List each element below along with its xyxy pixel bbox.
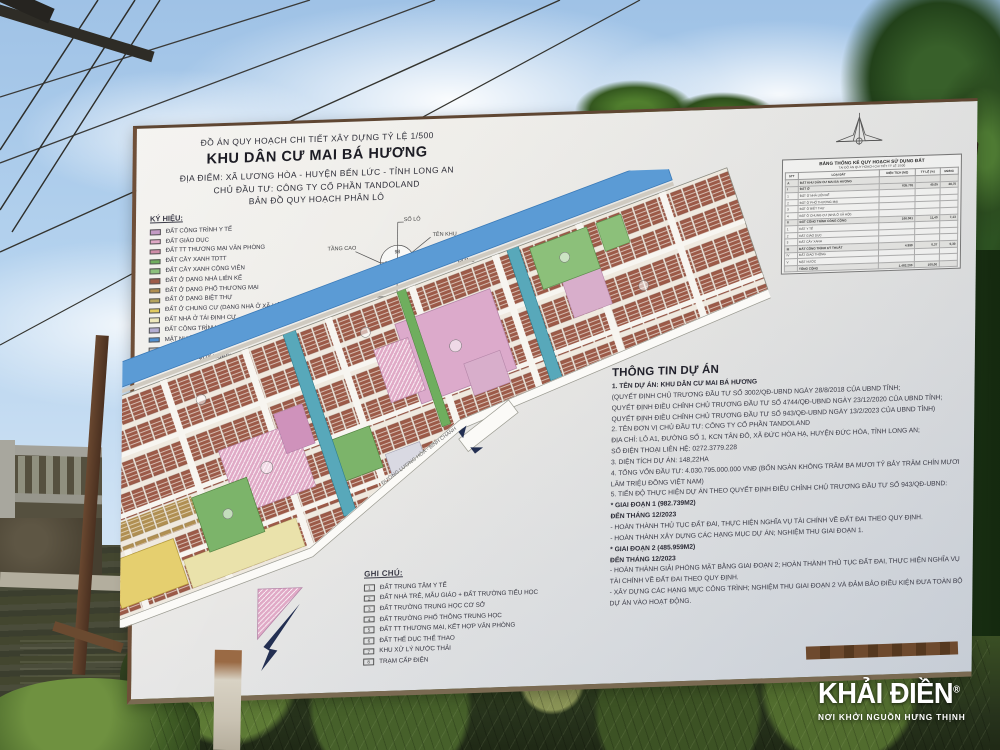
note-number: 7 <box>363 648 374 655</box>
railing-baluster <box>32 456 39 496</box>
note-number: 8 <box>363 658 374 665</box>
watermark-brand: KHẢI ĐIỀN® <box>818 680 960 709</box>
registered-mark: ® <box>953 684 959 695</box>
note-label: ĐẤT THỂ DỤC THỂ THAO <box>379 634 455 644</box>
map-corner-arrow <box>239 584 340 687</box>
photo-of-planning-billboard: ĐỒ ÁN QUY HOẠCH CHI TIẾT XÂY DỰNG TỶ LỆ … <box>0 0 1000 750</box>
stats-cell-stt <box>784 265 797 272</box>
billboard-post <box>213 650 242 750</box>
note-number: 4 <box>364 616 375 623</box>
project-info-block: THÔNG TIN DỰ ÁN 1. TÊN DỰ ÁN: KHU DÂN CƯ… <box>609 355 967 610</box>
land-use-stats-table: BẢNG THỐNG KÊ QUY HOẠCH SỬ DỤNG ĐẤT TẠI … <box>781 154 962 275</box>
stats-cell-name: TỔNG CỘNG <box>797 263 878 272</box>
note-items: 1ĐẤT TRUNG TÂM Y TẾ2ĐẤT NHÀ TRẺ, MẪU GIÁ… <box>363 574 614 667</box>
note-number: 3 <box>364 605 375 612</box>
note-label: ĐẤT TRUNG TÂM Y TẾ <box>380 582 447 591</box>
north-star-symbol <box>824 110 894 156</box>
stats-cell-area: 1.482.200 <box>878 261 914 269</box>
note-label: KHU XỬ LÝ NƯỚC THẢI <box>379 645 451 654</box>
note-label: TRẠM CẤP ĐIỆN <box>379 656 428 665</box>
railing-baluster <box>74 456 81 496</box>
planning-billboard: ĐỒ ÁN QUY HOẠCH CHI TIẾT XÂY DỰNG TỶ LỆ … <box>127 98 978 705</box>
railing-baluster <box>46 456 53 496</box>
watermark-tagline: NƠI KHỞI NGUỒN HƯNG THỊNH <box>818 712 969 722</box>
note-number: 1 <box>364 584 375 591</box>
railing-baluster <box>18 456 25 496</box>
stats-cell-norm <box>939 260 957 267</box>
stats-cell-pct: 100,00 <box>914 261 939 268</box>
project-info-lines: 1. TÊN DỰ ÁN: KHU DÂN CƯ MAI BÁ HƯƠNG(QU… <box>609 370 967 610</box>
note-number: 2 <box>364 595 375 602</box>
note-number: 6 <box>363 637 374 644</box>
brand-text: KHẢI ĐIỀN <box>818 678 953 710</box>
railing-baluster <box>60 456 67 496</box>
watermark: KHẢI ĐIỀN® NƠI KHỞI NGUỒN HƯNG THỊNH <box>818 680 969 722</box>
note-number: 5 <box>363 627 374 634</box>
notes-block: GHI CHÚ: 1ĐẤT TRUNG TÂM Y TẾ2ĐẤT NHÀ TRẺ… <box>363 561 614 667</box>
